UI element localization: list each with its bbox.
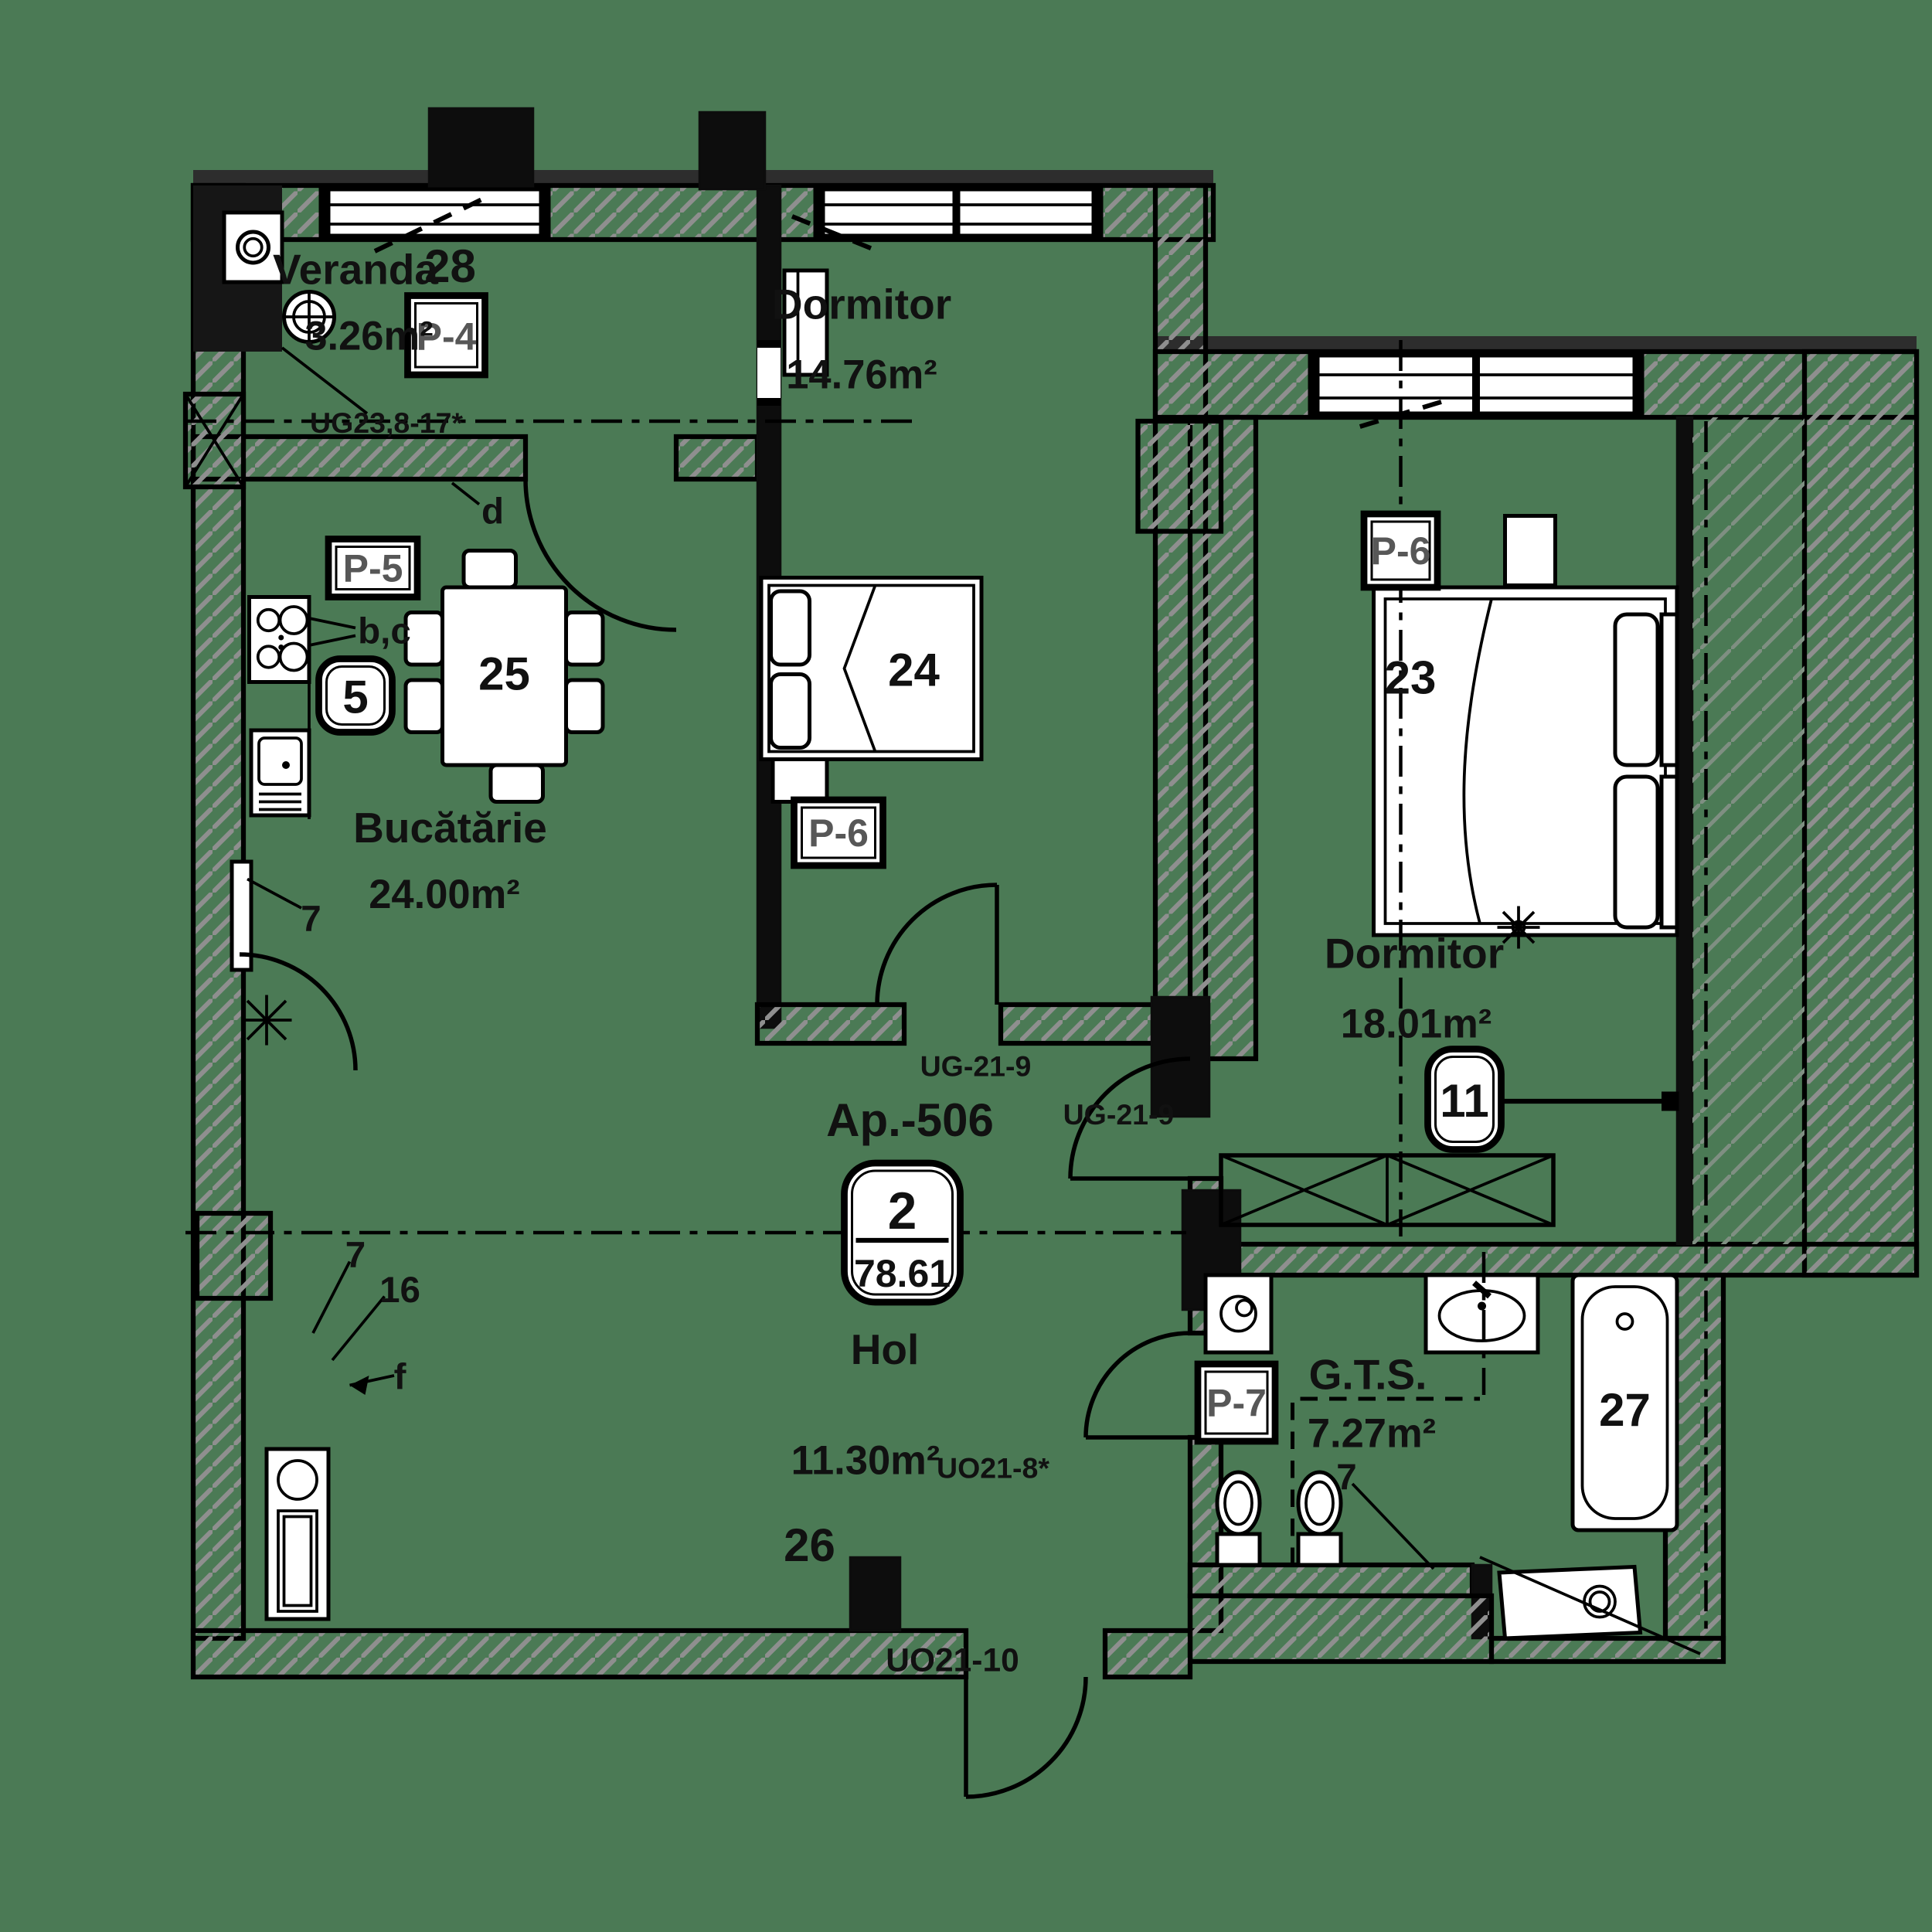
panel-P7: P-7 xyxy=(1198,1364,1275,1441)
bedroom-top-name: Dormitor xyxy=(772,281,951,328)
block-above-top-wall-a xyxy=(699,112,765,189)
wall-bath-bottom-outer xyxy=(1190,1596,1492,1662)
bathroom-area: 7.27m² xyxy=(1308,1411,1436,1457)
bedroom-right-nightstand-icon xyxy=(1505,516,1556,586)
marker-7-bottom: 7 xyxy=(345,1235,366,1276)
panel-P5: P-5 xyxy=(328,539,417,597)
bedroom-top-bed-icon xyxy=(761,578,981,760)
veranda-window xyxy=(321,189,549,236)
block-above-top-wall-b xyxy=(429,108,533,189)
kitchen-table-number: 25 xyxy=(478,648,530,700)
hall-number: 26 xyxy=(784,1519,835,1571)
bedroom-right-name: Dormitor xyxy=(1325,930,1504,978)
wall-entry-pier xyxy=(850,1557,900,1631)
hob-badge: 5 xyxy=(319,659,393,733)
kitchen-counter-label: b,c xyxy=(358,611,411,652)
panel-P5-label: P-5 xyxy=(343,547,403,590)
kitchen-name: Bucătărie xyxy=(353,804,547,852)
kitchen-radiator-label: 7 xyxy=(301,899,321,940)
bedroom-right-area: 18.01m² xyxy=(1341,1002,1492,1047)
vent-snowflake-icon xyxy=(242,995,292,1046)
door-code-veranda: UG23,8-17* xyxy=(310,406,463,439)
marker-16: 16 xyxy=(379,1270,420,1311)
wall-veranda-bottom-b xyxy=(676,437,757,479)
pillar-kitchen-left xyxy=(197,1213,270,1298)
hall-name: Hol xyxy=(851,1325,920,1373)
bathtub-number: 27 xyxy=(1599,1384,1651,1436)
marker-f: f xyxy=(394,1357,406,1398)
toilet-icon-1 xyxy=(1217,1472,1260,1565)
hall-area: 11.30m² xyxy=(791,1438,940,1484)
stove-icon xyxy=(250,597,310,682)
toilet-icon-2 xyxy=(1298,1472,1341,1565)
panel-P6-bedroom-top: P-6 xyxy=(794,800,883,866)
panel-P7-label: P-7 xyxy=(1206,1382,1267,1425)
veranda-bedroom-glazing xyxy=(757,340,781,406)
veranda-area: 3.26m² xyxy=(304,314,433,359)
bedroom-top-nightstand-icon xyxy=(773,760,827,802)
bathroom-name: G.T.S. xyxy=(1309,1351,1427,1399)
bedroom-right-bed-icon xyxy=(1374,587,1678,935)
bottom-boiler-icon xyxy=(267,1449,328,1619)
wall-bedroomright-inner-face xyxy=(1677,417,1692,1244)
apartment-label: Ap.-506 xyxy=(826,1094,994,1146)
door-code-bathroom: UO21-8* xyxy=(937,1452,1049,1485)
door-code-bedroom-top: UG-21-9 xyxy=(920,1050,1032,1083)
bath-sink-icon xyxy=(1426,1275,1538,1352)
bath-boiler-icon xyxy=(1206,1275,1271,1352)
panel-P6a-label: P-6 xyxy=(808,811,869,855)
panel-P6b-label: P-6 xyxy=(1371,529,1431,573)
panel-P6-bedroom-right: P-6 xyxy=(1364,514,1437,587)
bedroom-top-number: 24 xyxy=(888,645,940,696)
wall-cavity xyxy=(1692,417,1804,1244)
veranda-name: Veranda xyxy=(273,246,438,294)
heater-badge: 11 xyxy=(1428,1049,1502,1150)
heater-badge-label: 11 xyxy=(1440,1075,1488,1127)
wall-bath-bottom-inner xyxy=(1190,1565,1472,1596)
wall-bottom-mid xyxy=(1105,1631,1190,1677)
kitchen-area: 24.00m² xyxy=(369,872,520,917)
hob-badge-label: 5 xyxy=(342,672,368,723)
wall-bottom-left xyxy=(193,1631,966,1677)
apartment-badge: 2 78.61 xyxy=(845,1163,961,1302)
bedroom-right-window xyxy=(1310,355,1642,413)
wall-outer-right xyxy=(1804,352,1917,1275)
bedroom-top-window xyxy=(815,189,1101,236)
apartment-total-area: 78.61 xyxy=(854,1252,951,1295)
apartment-rooms-count: 2 xyxy=(888,1182,917,1240)
heater-wall-tick xyxy=(1662,1092,1679,1111)
kitchen-sink-icon xyxy=(251,730,309,815)
marker-d: d xyxy=(481,492,504,532)
bedroom-right-number: 23 xyxy=(1385,652,1437,704)
veranda-number: 28 xyxy=(424,240,476,292)
floor-plan-page: P-4 P-5 P-6 P-6 P-7 5 xyxy=(0,0,1932,1932)
door-code-entrance: UO21-10 xyxy=(886,1643,1019,1679)
door-code-bedroom-right: UG-21-9 xyxy=(1063,1098,1175,1131)
wall-bedroomtop-bottom-a xyxy=(757,1005,904,1043)
pillar-top-junction xyxy=(1138,421,1222,532)
floor-plan-drawing: P-4 P-5 P-6 P-6 P-7 5 xyxy=(0,0,1932,1932)
bathroom-fixture-label: 7 xyxy=(1336,1458,1356,1498)
wall-bedroomright-bottom xyxy=(1190,1244,1917,1275)
bedroom-top-area: 14.76m² xyxy=(786,352,937,398)
